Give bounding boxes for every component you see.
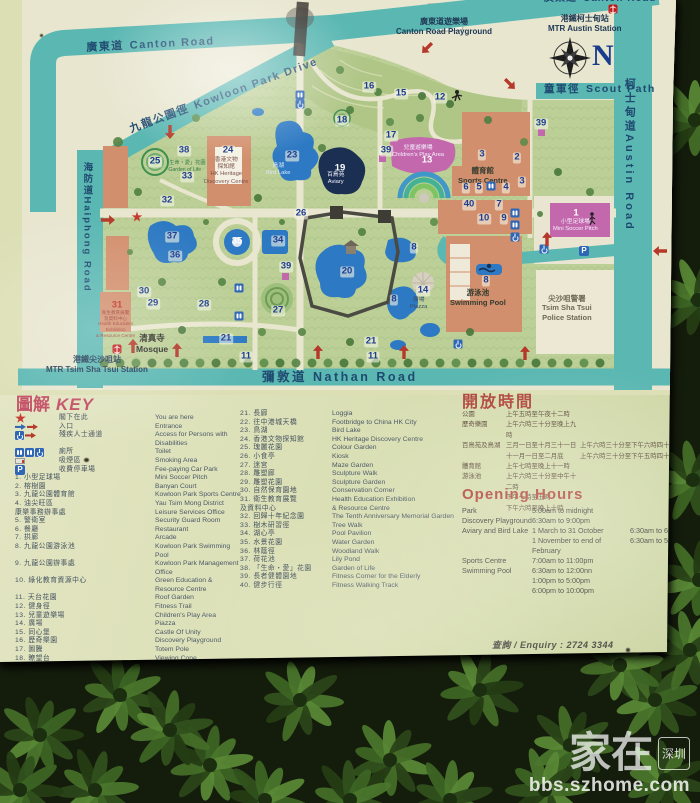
hours-venue <box>462 452 506 462</box>
map-label: 小型足球場Mini Soccer Pitch <box>553 219 598 233</box>
key-title: 圖解KEY <box>16 390 94 415</box>
hours-venue <box>462 576 532 586</box>
key-item-en: Bird Lake <box>332 427 468 436</box>
key-item-row: 20. 中國花園Chinese Garden <box>15 672 243 681</box>
key-item-row: 6. 餐廳Restaurant <box>15 526 243 535</box>
key-item-en: Roof Garden <box>155 594 243 603</box>
key-item-row: 28. 雕塑廊Sculpture Walk <box>240 470 468 479</box>
key-item-en: Footbridge to China HK City <box>332 419 468 428</box>
key-item-en: The Tenth Anniversary Memorial Garden <box>332 513 468 522</box>
you-are-here-star-icon <box>132 212 143 223</box>
key-item-row: 17. 圖騰Totem Pole <box>15 646 243 655</box>
hours-time-2 <box>630 516 694 526</box>
wheelchair-icon <box>454 340 463 349</box>
hours-row: Sports Centre7:00am to 11:00pm <box>462 556 694 566</box>
key-symbol-en: You are here <box>155 414 243 423</box>
map-label: 九龍公園徑Kowloon Park Drive <box>128 56 320 137</box>
map-label-en: Health Education Exhibition & Resource C… <box>96 321 135 338</box>
key-item-zh: 39. 長者健體園地 <box>240 573 332 582</box>
key-item-en: Kiosk <box>332 453 468 462</box>
map-label-en: N <box>592 39 614 72</box>
map-label: 游泳池Swimming Pool <box>450 288 506 308</box>
hours-time-2 <box>580 472 692 493</box>
key-item-zh: 4. 油尖旺區 康樂事務辦事處 <box>15 500 155 517</box>
entrance-arrow-icon <box>27 423 38 430</box>
map-label-en: Canton Road <box>129 35 214 51</box>
hours-time: 三月一日至十月三十一日 <box>506 441 580 451</box>
hours-venue: Sports Centre <box>462 556 532 566</box>
map-marker-11: 11 <box>239 352 252 363</box>
hours-time-2: 上午六時三十分至下午六時四十五分 <box>580 441 692 451</box>
hours-time: 上午七時至晚上十一時 <box>506 462 580 472</box>
hours-row: 歷奇樂園上午六時三十分至晚上九時 <box>462 420 692 441</box>
map-marker-17: 17 <box>384 131 398 142</box>
key-item-zh: 12. 健身徑 <box>15 603 155 612</box>
key-item-zh: 5. 警衛室 <box>15 517 155 526</box>
key-item-zh: 13. 兒童遊樂場 <box>15 612 155 621</box>
map-marker-20: 20 <box>340 267 354 278</box>
map-label-zh: 兒童遊樂場 <box>392 145 444 152</box>
key-item-en: Colour Garden <box>332 444 468 453</box>
entrance-arrow-icon <box>502 76 519 93</box>
key-item-en: Kowloon Park Sports Centre <box>155 491 243 500</box>
map-label-en: Piazza <box>410 304 427 311</box>
map-marker-29: 29 <box>146 299 160 310</box>
key-item-zh: 34. 湖心亭 <box>240 530 332 539</box>
toilet-icon <box>235 312 244 321</box>
entrance-arrow-icon <box>15 423 26 430</box>
map-marker-32: 32 <box>160 196 174 207</box>
key-item-en: Woodland Walk <box>332 548 468 557</box>
key-symbol-en: Fee-paying Car Park <box>155 466 243 475</box>
toilet-icon <box>15 448 24 457</box>
hours-time-2: 上午六時三十分至下午五時四十五分 <box>580 452 692 462</box>
hours-time-2 <box>580 462 692 472</box>
key-symbol-icons <box>15 423 59 432</box>
wheelchair-icon <box>511 233 520 242</box>
key-symbol-zh: 殘疾人士通道 <box>59 431 155 440</box>
key-symbol-row: 殘疾人士通道Access for Persons with Disabiliti… <box>15 431 243 448</box>
key-item-zh: 9. 九龍公園辦事處 <box>15 560 155 569</box>
entrance-arrow-icon <box>25 432 36 439</box>
key-item-zh: 1. 小型足球場 <box>15 474 155 483</box>
hours-venue: Park <box>462 506 532 516</box>
map-marker-28: 28 <box>197 300 211 311</box>
map-overlay: 廣東道Canton Road廣東道Canton Road九龍公園徑Kowloon… <box>0 0 700 395</box>
toilet-icon <box>511 209 520 218</box>
key-item-en: Garden of Life <box>332 565 468 574</box>
entrance-arrow-icon <box>399 345 409 359</box>
hours-row: 體育館上午七時至晚上十一時 <box>462 462 692 472</box>
map-marker-8: 8 <box>482 276 490 287</box>
key-item-row: 16. 歷奇樂園Discovery Playground <box>15 637 243 646</box>
key-item-en: Green Education & Resource Centre <box>155 577 243 594</box>
map-marker-25: 25 <box>148 157 162 168</box>
hours-time: 6:00pm to 10:00pm <box>532 586 630 596</box>
watermark: 家在 深圳 bbs.szhome.com <box>529 736 690 797</box>
map-marker-3: 3 <box>478 150 486 161</box>
wheelchair-icon <box>296 100 305 109</box>
map-label-en: Mosque <box>136 344 168 355</box>
key-item-en: Fitness Walking Track <box>332 582 468 591</box>
hours-venue <box>462 586 532 596</box>
key-item-zh: 37. 荷花池 <box>240 556 332 565</box>
hours-time-2 <box>580 493 692 503</box>
map-marker-8: 8 <box>390 295 398 306</box>
map-marker-27: 27 <box>271 306 285 317</box>
key-item-row: 40. 健步行徑Fitness Walking Track <box>240 582 468 591</box>
key-item-zh: 7. 拱廊 <box>15 534 155 543</box>
hours-time-2 <box>580 420 692 441</box>
key-item-row: 11. 天台花園Roof Garden <box>15 594 243 603</box>
key-symbol-en: Smoking Area <box>155 457 243 466</box>
key-item-row: 18. 瞭望台Viewing Cone <box>15 655 243 664</box>
map-marker-35: 35 <box>230 237 244 248</box>
map-label-en: Nathan Road <box>313 370 418 384</box>
key-item-row: 34. 湖心亭Pool Pavilion <box>240 530 468 539</box>
map-label: 廣東道遊樂場Canton Road Playground <box>396 17 492 38</box>
map-label: 兒童遊樂場Children's Play Area <box>392 145 444 159</box>
opening-hours-title-en: Opening Hours <box>462 486 583 503</box>
map-marker-38: 38 <box>177 146 191 157</box>
key-item-zh: 23. 鳥湖 <box>240 427 332 436</box>
map-marker-13: 13 <box>420 156 434 167</box>
key-symbol-en: Access for Persons with Disabilities <box>155 431 243 448</box>
key-item-row: 32. 回歸十年紀念園The Tenth Anniversary Memoria… <box>240 513 468 522</box>
map-label-zh: 體育館 <box>458 166 508 176</box>
map-label-zh: 柯士甸道 <box>623 78 635 134</box>
parking-icon: P <box>15 465 25 475</box>
map-marker-10: 10 <box>477 214 491 225</box>
map-label: 尖沙咀警署Tsim Sha Tsui Police Station <box>542 294 592 322</box>
key-item-zh: 18. 瞭望台 <box>15 655 155 664</box>
hours-time-2 <box>580 410 692 420</box>
map-marker-37: 37 <box>165 232 179 243</box>
map-label-en: Austin Road <box>623 134 635 232</box>
map-label-zh: 衛生教育展覽 及資料中心 <box>96 310 135 321</box>
key-item-row: 23. 鳥湖Bird Lake <box>240 427 468 436</box>
hours-venue: 百鳥苑及鳥湖 <box>462 441 506 451</box>
key-item-row: 25. 瑰麗花園Colour Garden <box>240 444 468 453</box>
key-symbol-icons <box>15 448 59 457</box>
key-item-row: 7. 拱廊Arcade <box>15 534 243 543</box>
watermark-site: bbs.szhome.com <box>529 775 690 797</box>
map-marker-39: 39 <box>379 146 393 157</box>
key-item-en: Security Guard Room <box>155 517 243 526</box>
hours-venue: Aviary and Bird Lake <box>462 526 532 536</box>
key-item-en: Castle Of Unity <box>155 629 243 638</box>
key-item-en: Sculpture Walk <box>332 470 468 479</box>
key-symbol-row: P收費停車場Fee-paying Car Park <box>15 466 243 475</box>
entrance-arrow-icon <box>101 215 115 225</box>
map-marker-34: 34 <box>271 236 285 247</box>
map-label-zh: 清真寺 <box>136 333 168 344</box>
key-symbol-zh: 吸煙區 <box>59 457 155 466</box>
key-title-en: KEY <box>56 395 94 414</box>
key-symbol-row: 廁所Toilet <box>15 448 243 457</box>
key-item-en: Kowloon Park Swimming Pool <box>155 543 243 560</box>
hours-row: 公園上午五時至午夜十二時 <box>462 410 692 420</box>
map-marker-23: 23 <box>285 151 299 162</box>
key-item-row: 5. 警衛室Security Guard Room <box>15 517 243 526</box>
key-item-zh: 28. 雕塑廊 <box>240 470 332 479</box>
key-item-zh: 38. 「生命・愛」花園 <box>240 565 332 574</box>
key-item-en: Discovery Playground <box>155 637 243 646</box>
opening-hours-rows-en: Park5:00am to midnightDiscovery Playgrou… <box>462 506 694 596</box>
hours-row: 十一月一日至二月底上午六時三十分至下午五時四十五分 <box>462 452 692 462</box>
toilet-icon <box>487 182 496 191</box>
hours-time: 6:30am to 9:00pm <box>532 516 630 526</box>
key-item-row: 36. 林蔭徑Woodland Walk <box>240 548 468 557</box>
key-item-en: Health Education Exhibition & Resource C… <box>332 496 468 513</box>
map-marker-26: 26 <box>294 209 308 220</box>
key-item-row: 8. 九龍公園游泳池Kowloon Park Swimming Pool <box>15 543 243 560</box>
hours-venue: 歷奇樂園 <box>462 420 506 441</box>
map-label-zh: 廣場 <box>410 297 427 304</box>
map-label: N <box>592 38 614 74</box>
map-label: 香港文物 探知館HK Heritage Discovery Centre <box>204 157 248 186</box>
key-item-row: 27. 迷宮Maze Garden <box>240 462 468 471</box>
hours-row: 1 November to end of February6:30am to 5… <box>462 536 694 556</box>
toilet-icon <box>25 448 34 457</box>
map-marker-14: 14 <box>416 286 430 297</box>
key-item-en: Tree Walk <box>332 522 468 531</box>
key-title-zh: 圖解 <box>16 395 50 414</box>
key-item-zh: 40. 健步行徑 <box>240 582 332 591</box>
map-marker-1: 1 <box>572 209 580 220</box>
map-marker-11: 11 <box>366 352 379 363</box>
key-symbol-row: 閣下在此You are here <box>15 414 243 423</box>
key-item-en: Totem Pole <box>155 646 243 655</box>
hours-row: 1:00pm to 5:00pm <box>462 576 694 586</box>
key-item-zh: 3. 九龍公園體育館 <box>15 491 155 500</box>
hours-venue: 體育館 <box>462 462 506 472</box>
map-marker-36: 36 <box>168 251 182 262</box>
key-item-en: Loggia <box>332 410 468 419</box>
hours-time: 1 March to 31 October <box>532 526 630 536</box>
hours-row: 百鳥苑及鳥湖三月一日至十月三十一日上午六時三十分至下午六時四十五分 <box>462 441 692 451</box>
key-item-row: 26. 小食亭Kiosk <box>240 453 468 462</box>
hours-row: 6:00pm to 10:00pm <box>462 586 694 596</box>
key-item-zh: 26. 小食亭 <box>240 453 332 462</box>
key-item-zh: 20. 中國花園 <box>15 672 155 681</box>
wheelchair-icon <box>15 431 24 440</box>
entrance-arrow-icon <box>520 346 530 360</box>
map-marker-2: 2 <box>513 153 521 164</box>
key-symbol-zh: 廁所 <box>59 448 155 457</box>
map-label: 廣場Piazza <box>410 297 427 311</box>
entrance-arrow-icon <box>419 40 436 57</box>
map-label-zh: 彌敦道 <box>262 370 307 384</box>
map-label-en: HK Heritage Discovery Centre <box>204 171 248 185</box>
mtr-icon <box>113 345 122 354</box>
map-label-zh: 尖沙咀警署 <box>542 294 592 303</box>
map-marker-31: 31 <box>110 301 124 312</box>
map-marker-3: 3 <box>518 177 526 188</box>
map-marker-7: 7 <box>495 200 503 211</box>
map-marker-19: 19 <box>333 164 347 175</box>
hours-time: 1 November to end of February <box>532 536 630 556</box>
map-label-en: Swimming Pool <box>450 298 506 308</box>
map-label: 童軍徑Scout Path <box>544 83 656 96</box>
key-item-en: Mini Soccer Pitch <box>155 474 243 483</box>
key-item-row: 13. 兒童遊樂場Children's Play Area <box>15 612 243 621</box>
hours-time-2 <box>630 586 694 596</box>
key-item-zh: 32. 回歸十年紀念園 <box>240 513 332 522</box>
key-item-zh: 11. 天台花園 <box>15 594 155 603</box>
key-item-zh: 36. 林蔭徑 <box>240 548 332 557</box>
hours-time: 上午六時三十分至晚上九時 <box>506 420 580 441</box>
map-label-en: Scout Path <box>586 83 656 95</box>
key-item-row: 37. 荷花池Lily Pond <box>240 556 468 565</box>
toilet-icon <box>511 221 520 230</box>
key-item-row: 10. 綠化教育資源中心Green Education & Resource C… <box>15 577 243 594</box>
key-item-en: Banyan Court <box>155 483 243 492</box>
key-item-zh: 10. 綠化教育資源中心 <box>15 577 155 586</box>
key-item-zh: 35. 水景花園 <box>240 539 332 548</box>
map-label: 海防道Haiphong Road <box>81 162 92 293</box>
key-item-en: Children's Play Area <box>155 612 243 621</box>
hours-time: 6:30am to 12:00nn <box>532 566 630 576</box>
hours-row: Aviary and Bird Lake1 March to 31 Octobe… <box>462 526 694 536</box>
map-label: 廣東道Canton Road <box>544 0 656 5</box>
map-label: 彌敦道Nathan Road <box>262 370 418 385</box>
key-item-row: 4. 油尖旺區 康樂事務辦事處Yau Tsim Mong District Le… <box>15 500 243 517</box>
key-item-en: Viewing Cone <box>155 655 243 664</box>
key-symbol-row: 入口Entrance <box>15 423 243 432</box>
opening-hours-title-zh: 開放時間 <box>462 388 534 412</box>
key-item-zh: 19. 百鳥苑 <box>15 663 155 672</box>
key-item-zh: 21. 長廊 <box>240 410 332 419</box>
map-label: 衛生教育展覽 及資料中心Health Education Exhibition … <box>96 310 135 339</box>
key-item-en: Kowloon Park Management Office <box>155 560 243 577</box>
key-item-row: 30. 自然保育園地Conservation Corner <box>240 487 468 496</box>
key-item-row: 39. 長者健體園地Fitness Corner for the Elderly <box>240 573 468 582</box>
map-label-zh: 海防道 <box>81 162 92 197</box>
map-marker-16: 16 <box>362 82 376 93</box>
entrance-arrow-icon <box>172 343 182 357</box>
map-marker-40: 40 <box>462 200 476 211</box>
watermark-badge: 深圳 <box>658 737 690 770</box>
bug-speck <box>84 458 89 462</box>
key-item-row: 22. 往中港城天橋Footbridge to China HK City <box>240 419 468 428</box>
key-item-row: 12. 健身徑Fitness Trail <box>15 603 243 612</box>
map-label-en: Tsim Sha Tsui Police Station <box>542 303 592 322</box>
key-item-en: Sculpture Garden <box>332 479 468 488</box>
key-item-zh: 22. 往中港城天橋 <box>240 419 332 428</box>
key-symbol-en: Entrance <box>155 423 243 432</box>
key-item-en: Aviary <box>155 663 243 672</box>
hours-time: 5:00am to midnight <box>532 506 630 516</box>
map-label-zh: 「生命・愛」花園 <box>164 160 206 167</box>
map-label-en: MTR Austin Station <box>548 24 621 34</box>
key-item-row: 38. 「生命・愛」花園Garden of Life <box>240 565 468 574</box>
key-item-en: Fitness Trail <box>155 603 243 612</box>
key-item-row: 1. 小型足球場Mini Soccer Pitch <box>15 474 243 483</box>
map-marker-30: 30 <box>137 287 151 298</box>
map-marker-9: 9 <box>500 214 508 225</box>
hours-venue <box>462 536 532 556</box>
map-label-zh: 游泳池 <box>450 288 506 298</box>
photo-of-kowloon-park-map-sign: 廣東道Canton Road廣東道Canton Road九龍公園徑Kowloon… <box>0 0 700 803</box>
map-label-en: Mini Soccer Pitch <box>553 226 598 233</box>
map-label-en: Children's Play Area <box>392 152 444 159</box>
map-label-zh: 小型足球場 <box>553 219 598 226</box>
key-item-en: Conservation Corner <box>332 487 468 496</box>
key-item-row: 21. 長廊Loggia <box>240 410 468 419</box>
key-item-en: Restaurant <box>155 526 243 535</box>
key-symbol-icons: P <box>15 466 59 475</box>
hours-time: 7:00am to 11:00pm <box>532 556 630 566</box>
key-item-zh: 16. 歷奇樂園 <box>15 637 155 646</box>
map-label-en: Aviary <box>327 179 344 186</box>
key-item-en: Yau Tsim Mong District Leisure Services … <box>155 500 243 517</box>
hours-time: 上午五時至午夜十二時 <box>506 410 580 420</box>
hours-venue: Swimming Pool <box>462 566 532 576</box>
map-marker-21: 21 <box>219 334 233 345</box>
key-item-en: Lily Pond <box>332 556 468 565</box>
hours-time-2 <box>630 566 694 576</box>
map-marker-5: 5 <box>475 183 483 194</box>
key-item-en: Water Garden <box>332 539 468 548</box>
hours-time-2 <box>630 576 694 586</box>
map-label: 鳥湖Bird Lake <box>266 163 291 177</box>
entrance-arrow-icon <box>653 246 667 256</box>
key-column-1: 閣下在此You are here入口Entrance殘疾人士通道Access f… <box>15 414 243 680</box>
hours-row: Discovery Playground6:30am to 9:00pm <box>462 516 694 526</box>
key-symbol-icons <box>15 431 59 440</box>
hours-time-2 <box>630 506 694 516</box>
entrance-arrow-icon <box>165 125 175 139</box>
key-item-en: Chinese Garden <box>155 672 243 681</box>
hours-time-2: 6:30am to 5:45pm <box>630 536 694 556</box>
hours-venue: Discovery Playground <box>462 516 532 526</box>
map-label: 港鐵尖沙咀站MTR Tsim Sha Tsui Station <box>46 355 148 376</box>
map-label-en: MTR Tsim Sha Tsui Station <box>46 365 148 375</box>
map-label-en: Bird Lake <box>266 170 291 177</box>
map-marker-15: 15 <box>394 89 408 100</box>
map-marker-4: 4 <box>502 183 510 194</box>
toilet-icon <box>296 91 305 100</box>
hours-row: Swimming Pool6:30am to 12:00nn <box>462 566 694 576</box>
key-item-zh: 30. 自然保育園地 <box>240 487 332 496</box>
key-item-row: 35. 水景花園Water Garden <box>240 539 468 548</box>
hours-venue: 公園 <box>462 410 506 420</box>
key-item-en: Fitness Corner for the Elderly <box>332 573 468 582</box>
hours-time: 十一月一日至二月底 <box>506 452 580 462</box>
key-symbol-icons <box>15 414 59 423</box>
map-label: 清真寺Mosque <box>136 333 168 354</box>
map-label-zh: 港鐵尖沙咀站 <box>46 355 148 365</box>
map-label-zh: 童軍徑 <box>544 83 580 95</box>
park-map: 廣東道Canton Road廣東道Canton Road九龍公園徑Kowloon… <box>0 0 700 395</box>
key-symbol-en: Toilet <box>155 448 243 457</box>
key-item-zh: 8. 九龍公園游泳池 <box>15 543 155 552</box>
key-symbol-zh: 入口 <box>59 423 155 432</box>
entrance-arrow-icon <box>313 345 323 359</box>
map-marker-39: 39 <box>534 119 548 130</box>
mtr-icon <box>609 5 618 14</box>
map-label-zh: 鳥湖 <box>266 163 291 170</box>
hours-time-2 <box>630 556 694 566</box>
key-item-row: 3. 九龍公園體育館Kowloon Park Sports Centre <box>15 491 243 500</box>
key-item-zh: 14. 廣場 <box>15 620 155 629</box>
hours-row: Park5:00am to midnight <box>462 506 694 516</box>
key-symbol-zh: 收費停車場 <box>59 466 155 475</box>
hours-time-2: 6:30am to 6:45pm <box>630 526 694 536</box>
map-label-zh: 廣東道 <box>544 0 577 4</box>
key-item-row: 9. 九龍公園辦事處Kowloon Park Management Office <box>15 560 243 577</box>
